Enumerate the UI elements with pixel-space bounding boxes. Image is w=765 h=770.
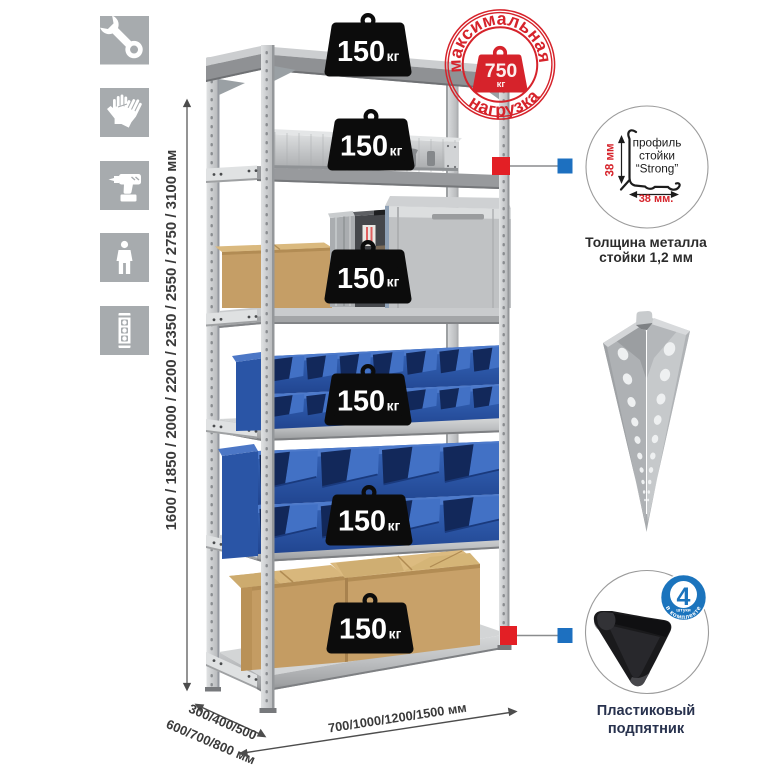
svg-text:“Strong”: “Strong”: [636, 162, 679, 176]
svg-text:150: 150: [337, 263, 385, 295]
svg-text:профиль: профиль: [633, 136, 682, 150]
svg-text:150: 150: [337, 386, 385, 418]
svg-text:кг: кг: [388, 519, 401, 534]
svg-text:Толщина металла: Толщина металла: [585, 235, 707, 250]
svg-text:штуки: штуки: [676, 609, 691, 614]
svg-text:150: 150: [338, 506, 386, 538]
svg-text:подпятник: подпятник: [608, 721, 685, 737]
svg-text:38 мм: 38 мм: [605, 143, 617, 176]
svg-text:кг: кг: [389, 627, 402, 642]
svg-text:4: 4: [677, 583, 691, 611]
svg-text:150: 150: [340, 131, 388, 163]
svg-text:кг: кг: [387, 399, 400, 414]
svg-text:38 мм.: 38 мм.: [639, 193, 674, 205]
svg-text:150: 150: [339, 614, 387, 646]
svg-text:кг: кг: [390, 144, 403, 159]
svg-text:стойки: стойки: [639, 149, 675, 163]
svg-text:кг: кг: [387, 49, 400, 64]
svg-text:кг: кг: [387, 275, 400, 290]
svg-text:стойки 1,2 мм: стойки 1,2 мм: [599, 250, 693, 265]
svg-text:кг: кг: [497, 79, 506, 90]
svg-text:1600 / 1850 / 2000 / 2200 / 23: 1600 / 1850 / 2000 / 2200 / 2350 / 2550 …: [163, 150, 180, 531]
svg-text:150: 150: [337, 36, 385, 68]
svg-text:Пластиковый: Пластиковый: [597, 703, 696, 719]
